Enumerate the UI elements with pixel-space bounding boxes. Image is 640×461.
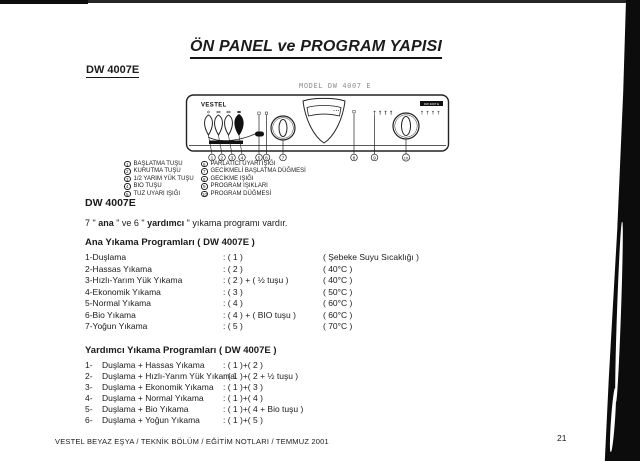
program-code: : ( 1 ): [223, 252, 243, 262]
legend-number: 1: [124, 161, 131, 168]
program-code: : ( 2 ) + ( ½ tuşu ): [223, 275, 288, 285]
legend-item: 6PARLATICI UYARI IŞIĞI: [201, 160, 306, 168]
legend-label: KURUTMA TUŞU: [134, 168, 181, 174]
legend-item: 8GECİKME IŞIĞI: [201, 175, 306, 183]
program-name: Duşlama + Yoğun Yıkama: [102, 415, 200, 425]
legend-label: PARLATICI UYARI IŞIĞI: [211, 161, 276, 167]
main-programs-heading: Ana Yıkama Programları ( DW 4007E ): [85, 237, 255, 248]
program-code: : ( 4 ): [223, 298, 243, 308]
program-index: 3-: [85, 382, 93, 392]
legend-label: PROGRAM IŞIKLARI: [211, 183, 268, 189]
legend-number: 3: [124, 176, 131, 183]
table-row: 3-Hızlı-Yarım Yük Yıkama: ( 2 ) + ( ½ tu…: [85, 275, 485, 287]
legend-label: GECİKME IŞIĞI: [211, 176, 254, 182]
table-row: 4-Duşlama + Normal Yıkama: ( 1 )+( 4 ): [85, 393, 485, 404]
program-name: 2-Hassas Yıkama: [85, 264, 152, 274]
handle-dot: [334, 110, 335, 111]
legend-item: 7GECİKMELİ BAŞLATMA DÜĞMESİ: [201, 168, 306, 176]
program-name: 4-Ekonomik Yıkama: [85, 287, 161, 297]
legend-label: PROGRAM DÜĞMESİ: [211, 191, 272, 197]
program-name: Duşlama + Bio Yıkama: [102, 404, 189, 414]
table-row: 5-Duşlama + Bio Yıkama: ( 1 )+( 4 + Bio …: [85, 404, 485, 415]
legend-number: 4: [124, 183, 131, 190]
intro-sentence: 7 " ana " ve 6 " yardımcı " yıkama progr…: [85, 218, 287, 228]
page-title: ÖN PANEL ve PROGRAM YAPISI: [190, 38, 442, 59]
program-code: : ( 3 ): [223, 287, 243, 297]
legend-column-left: 1BAŞLATMA TUŞU 2KURUTMA TUŞU 31/2 YARIM …: [124, 160, 194, 198]
indicator-window: [255, 132, 264, 137]
svg-text:9: 9: [373, 155, 376, 161]
program-temp: ( 60°C ): [323, 310, 352, 320]
intro-sentence-bold: yardımcı: [147, 218, 184, 228]
table-row: 4-Ekonomik Yıkama: ( 3 )( 50°C ): [85, 287, 485, 299]
legend-item: 9PROGRAM IŞIKLARI: [201, 183, 306, 191]
legend-item: 4BIO TUŞU: [124, 183, 194, 191]
legend-label: 1/2 YARIM YÜK TUŞU: [134, 176, 194, 182]
intro-sentence-part: " yıkama programı vardır.: [184, 218, 287, 228]
program-name: 7-Yoğun Yıkama: [85, 321, 147, 331]
program-index: 1-: [85, 360, 93, 370]
program-temp: ( 50°C ): [323, 287, 352, 297]
program-name: 6-Bio Yıkama: [85, 310, 136, 320]
vestel-logo: VESTEL: [201, 103, 227, 109]
program-index: 5-: [85, 404, 93, 414]
aux-programs-heading: Yardımcı Yıkama Programları ( DW 4007E ): [85, 345, 277, 356]
program-index: 6-: [85, 415, 93, 425]
page-number: 21: [557, 433, 566, 443]
bio-icon: [237, 111, 240, 113]
program-name: 5-Normal Yıkama: [85, 298, 151, 308]
legend-label: BIO TUŞU: [134, 183, 162, 189]
legend-number: 6: [201, 161, 208, 168]
handle-dot: [336, 110, 337, 111]
legend-item: 31/2 YARIM YÜK TUŞU: [124, 175, 194, 183]
table-row: 1-Duşlama + Hassas Yıkama: ( 1 )+( 2 ): [85, 360, 485, 371]
program-index: 4-: [85, 393, 93, 403]
program-code: : ( 1 )+( 3 ): [223, 382, 263, 392]
program-code: : ( 1 )+( 2 ): [223, 360, 263, 370]
program-name: Duşlama + Hızlı-Yarım Yük Yıkama: [102, 371, 235, 381]
legend-item: 1BAŞLATMA TUŞU: [124, 160, 194, 168]
program-code: : ( 1 )+( 5 ): [223, 415, 263, 425]
program-code: : ( 1 )+( 4 + Bio tuşu ): [223, 404, 303, 414]
handle-dot: [338, 110, 339, 111]
scan-edge-top-blob: [0, 0, 88, 4]
legend-label: BAŞLATMA TUŞU: [134, 161, 183, 167]
program-code: : ( 1 )+( 4 ): [223, 393, 263, 403]
program-name: Duşlama + Normal Yıkama: [102, 393, 204, 403]
intro-sentence-bold: ana: [98, 218, 114, 228]
table-row: 2-Hassas Yıkama: ( 2 )( 40°C ): [85, 264, 485, 276]
scan-edge-top: [0, 0, 640, 3]
program-temp: ( 60°C ): [323, 298, 352, 308]
table-row: 2-Duşlama + Hızlı-Yarım Yük Yıkama: ( 1 …: [85, 371, 485, 382]
program-index: 2-: [85, 371, 93, 381]
program-temp: ( 40°C ): [323, 275, 352, 285]
footer-text: VESTEL BEYAZ EŞYA / TEKNİK BÖLÜM / EĞİTİ…: [55, 437, 329, 446]
program-code: : ( 5 ): [223, 321, 243, 331]
legend-number: 2: [124, 168, 131, 175]
program-code: : ( 4 ) + ( BIO tuşu ): [223, 310, 296, 320]
intro-sentence-part: " ve 6 ": [114, 218, 147, 228]
program-temp: ( Şebeke Suyu Sıcaklığı ): [323, 252, 419, 262]
program-code: : ( 2 ): [223, 264, 243, 274]
legend-column-right: 6PARLATICI UYARI IŞIĞI 7GECİKMELİ BAŞLAT…: [201, 160, 306, 198]
legend-number: 10: [201, 191, 208, 198]
intro-sentence-part: 7 ": [85, 218, 98, 228]
table-row: 7-Yoğun Yıkama: ( 5 ) ( 70°C ): [85, 321, 485, 333]
legend-label: TUZ UYARI IŞIĞI: [134, 191, 181, 197]
legend-number: 7: [201, 168, 208, 175]
svg-text:10: 10: [404, 155, 409, 160]
program-name: 1-Duşlama: [85, 252, 126, 262]
table-row: 6-Bio Yıkama: ( 4 ) + ( BIO tuşu )( 60°C…: [85, 310, 485, 322]
intro-model-heading: DW 4007E: [85, 197, 136, 209]
legend-item: 2KURUTMA TUŞU: [124, 168, 194, 176]
program-code: : ( 1 )+( 2 + ½ tuşu ): [223, 371, 298, 381]
legend-number: 9: [201, 183, 208, 190]
legend-item: 10PROGRAM DÜĞMESİ: [201, 190, 306, 198]
table-row: 3-Duşlama + Ekonomik Yıkama: ( 1 )+( 3 ): [85, 382, 485, 393]
program-name: 3-Hızlı-Yarım Yük Yıkama: [85, 275, 182, 285]
table-row: 5-Normal Yıkama: ( 4 )( 60°C ): [85, 298, 485, 310]
main-programs-table: 1-Duşlama: ( 1 )( Şebeke Suyu Sıcaklığı …: [85, 252, 485, 333]
table-row: 1-Duşlama: ( 1 )( Şebeke Suyu Sıcaklığı …: [85, 252, 485, 264]
panel-diagram: VESTEL DW 4007 E 1: [183, 88, 463, 164]
program-temp: ( 70°C ): [323, 321, 352, 331]
table-row: 6-Duşlama + Yoğun Yıkama: ( 1 )+( 5 ): [85, 415, 485, 426]
model-heading: DW 4007E: [86, 64, 139, 78]
model-badge-text: DW 4007 E: [424, 102, 439, 106]
program-name: Duşlama + Hassas Yıkama: [102, 360, 205, 370]
program-name: Duşlama + Ekonomik Yıkama: [102, 382, 214, 392]
program-temp: ( 40°C ): [323, 264, 352, 274]
aux-programs-table: 1-Duşlama + Hassas Yıkama: ( 1 )+( 2 ) 2…: [85, 360, 485, 426]
legend-number: 8: [201, 176, 208, 183]
svg-text:8: 8: [353, 155, 356, 161]
legend-label: GECİKMELİ BAŞLATMA DÜĞMESİ: [211, 168, 306, 174]
